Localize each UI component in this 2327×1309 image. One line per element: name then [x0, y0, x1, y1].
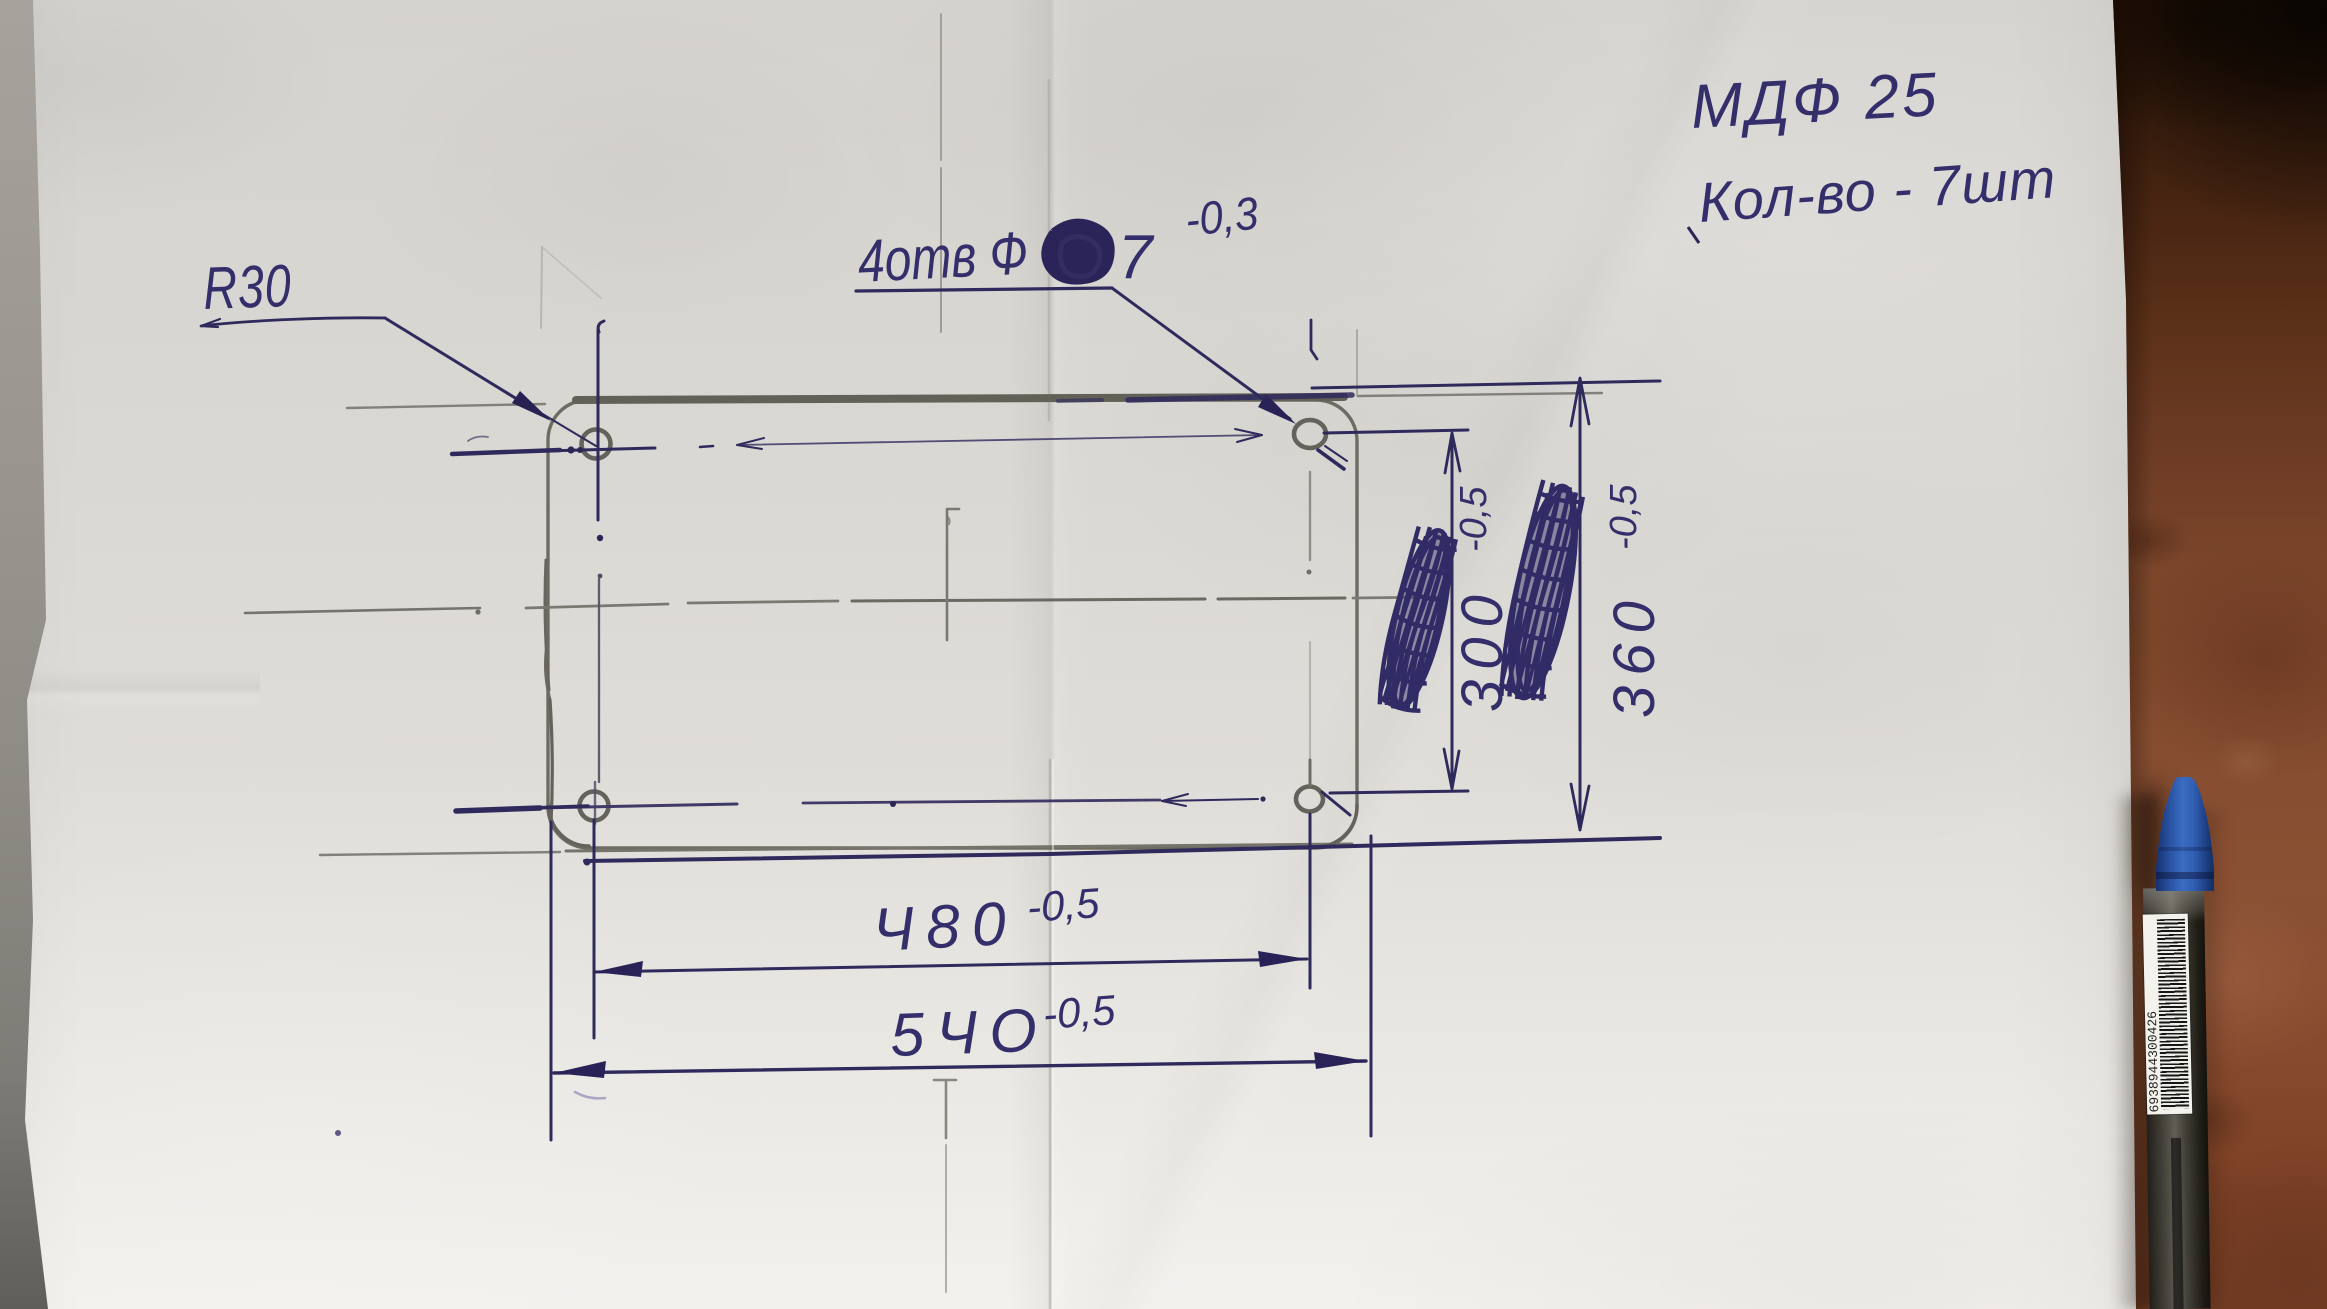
svg-text:-0,5: -0,5	[1025, 879, 1101, 931]
svg-text:Кол-во - 7шт: Кол-во - 7шт	[1696, 146, 2058, 234]
svg-text:Ч80: Ч80	[871, 888, 1019, 963]
svg-text:МДФ 25: МДФ 25	[1689, 60, 1941, 142]
svg-text:R30: R30	[202, 252, 292, 322]
svg-text:-0,5: -0,5	[1041, 986, 1117, 1038]
svg-text:-0,5: -0,5	[1453, 486, 1495, 552]
svg-text:4отв Ф: 4отв Ф	[856, 219, 1029, 295]
svg-text:7: 7	[1118, 223, 1155, 292]
svg-text:-0,5: -0,5	[1603, 484, 1645, 550]
svg-text:-0,3: -0,3	[1183, 188, 1261, 246]
svg-text:5ЧО: 5ЧО	[889, 996, 1050, 1069]
svg-text:360: 360	[1602, 591, 1667, 718]
